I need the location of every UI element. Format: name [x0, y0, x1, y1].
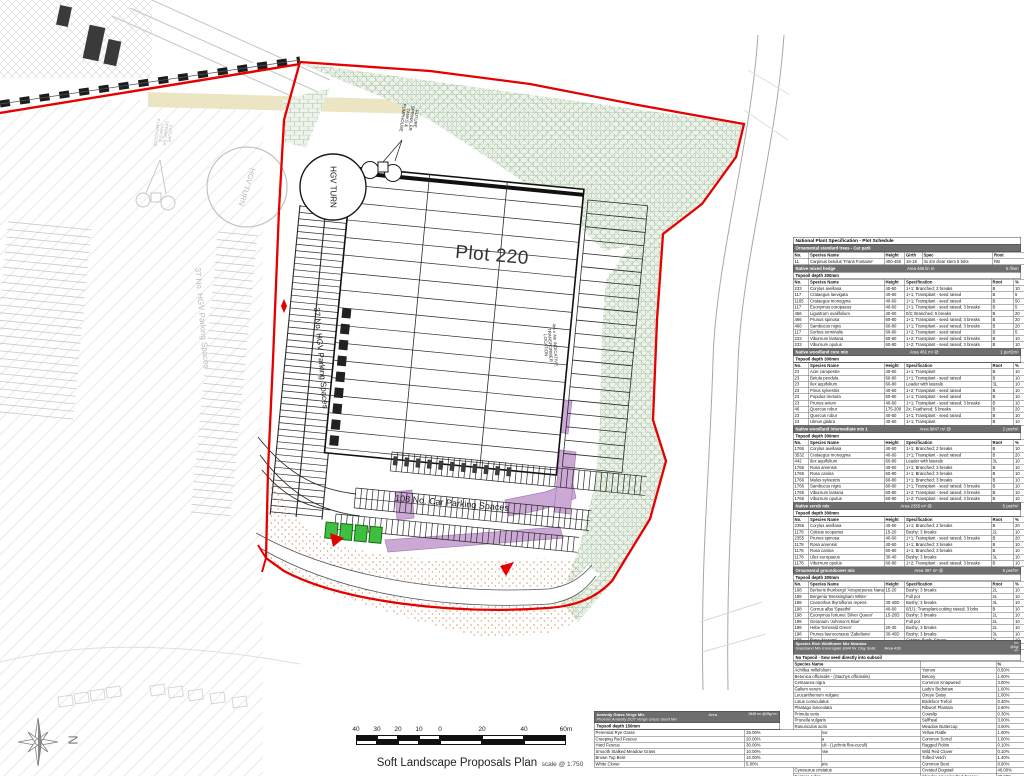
- table-cell: 1178: [793, 560, 809, 566]
- table-cell: 10: [1014, 496, 1024, 502]
- table-cell: 10: [1014, 419, 1024, 425]
- table-cell: 1+2; Transplant - seed raised; 3 breaks: [905, 496, 992, 502]
- table-cell: 60-80: [884, 560, 905, 566]
- table-cell: 1766: [793, 496, 809, 502]
- wildflower-rows-table: Species Name%Achillea millefoliumYarrow0…: [793, 661, 1024, 776]
- wildflower-titles: Species Rich Wildflower Mix MeadowGrassl…: [796, 642, 901, 653]
- transformer-label: 4m x 4m INDICATIVE TRANSFORMER LOCATION: [542, 321, 558, 369]
- scale-bar-segment: [398, 740, 419, 745]
- table-cell: Viburnum opulus: [809, 496, 885, 502]
- table-cell: Viburnum opulus: [809, 560, 885, 566]
- schedule-section-table: No.Species NameHeightSpecificationRoot%2…: [793, 279, 1024, 348]
- north-letter: N: [66, 735, 81, 744]
- table-cell: 1+2; Transplant - seed raised; 3 breaks: [905, 490, 992, 496]
- amenity-title-bar: Amenity Grass Verge MixPhoenix Amenity D…: [594, 711, 780, 723]
- plant-schedule-table: National Plant Specification - Plot Sche…: [793, 237, 1021, 650]
- section-name: Ornamental standard trees - Car park: [796, 246, 871, 251]
- drawing-scale-note: scale @ 1:750: [542, 761, 584, 768]
- table-cell: RB: [993, 259, 1024, 265]
- amenity-grass-mix-table: Amenity Grass Verge MixPhoenix Amenity D…: [594, 711, 780, 768]
- table-cell: 5.00%: [745, 761, 822, 767]
- table-row: 233Viburnum opulus60-801+2; Transplant -…: [793, 342, 1024, 348]
- table-cell: 1+2; Transplant - seed raised; 3 breaks: [905, 336, 992, 342]
- table-cell: Carpinus betulus 'Frans Fontaine': [809, 259, 885, 265]
- table-cell: 1+2; Transplant - seed raised; 3 breaks: [905, 560, 992, 566]
- drawing-title-block: Soft Landscape Proposals Plan scale @ 1:…: [340, 753, 620, 771]
- table-cell: B: [991, 560, 1014, 566]
- subtitle-plain: Grassland Mix: [796, 646, 823, 651]
- wildflower-units: m²@4g/m²: [1010, 642, 1018, 653]
- table-cell: 400-450: [884, 259, 905, 265]
- table-cell: 0/1/1; Transplant-cutting raised; 3 brks: [905, 606, 992, 612]
- wildflower-subtitle: Grassland Mix Emorsgate EM4 for Clay Soi…: [796, 646, 901, 651]
- table-cell: 40-60: [884, 419, 905, 425]
- amenity-rows-table: Perennial Rye Grass25.00%Creeping Red Fe…: [594, 730, 822, 768]
- schedule-section-bar: Native woodland intermediate mix 1Area 8…: [793, 425, 1021, 433]
- table-cell: 10: [1014, 342, 1024, 348]
- table-cell: 11: [793, 259, 809, 265]
- table-row: 1766Viburnum opulus60-801+2; Transplant …: [793, 496, 1024, 502]
- table-cell: 60-80: [884, 496, 905, 502]
- table-cell: B: [991, 342, 1014, 348]
- table-cell: B: [991, 419, 1014, 425]
- schedule-section-table: No.Species NameHeightSpecificationRoot%1…: [793, 439, 1024, 502]
- subtitle-italic: Emorsgate EM4 for Clay Soils: [822, 646, 875, 651]
- scale-bar: 403020100204060m: [356, 726, 570, 752]
- section-area: Area 461 m² @: [910, 349, 939, 354]
- scale-tick-label: 20: [478, 726, 485, 733]
- table-row: 1178Viburnum opulus60-801+2; Transplant …: [793, 560, 1024, 566]
- schedule-section-table: No.Species NameHeightSpecificationRoot%2…: [793, 362, 1024, 425]
- scale-bar-segment: [482, 740, 524, 745]
- section-area: Area 2355 m² @: [900, 503, 931, 508]
- table-cell: 1+1; Transplant - seed raised; 3 breaks: [905, 304, 992, 310]
- table-row: White Clover5.00%: [594, 761, 822, 767]
- scale-tick-label: 60m: [560, 726, 573, 733]
- amenity-area-label: Area: [708, 713, 716, 722]
- scale-tick-label: 10: [415, 726, 422, 733]
- section-rate: 5 per/m²: [1003, 503, 1019, 508]
- table-cell: Berberis thunbergii 'Atropurpurea Nana': [809, 587, 885, 593]
- amenity-subtitle: Phoenix Amenity DOT Verge Grass Seed Mix: [597, 717, 678, 722]
- section-rate: 2 per/m²: [1003, 426, 1019, 431]
- table-cell: Ulmus glabra: [809, 419, 885, 425]
- section-area: Area 466 lin m: [907, 266, 934, 271]
- table-cell: Viburnum opulus: [809, 342, 885, 348]
- hgv-turn-label: HGV TURN: [329, 166, 338, 208]
- section-rate: 5 per/m²: [1003, 568, 1019, 573]
- table-cell: 23: [793, 419, 809, 425]
- table-row: 11Carpinus betulus 'Frans Fontaine'400-4…: [793, 259, 1024, 265]
- table-cell: 60-80: [884, 342, 905, 348]
- landscape-plan-sheet: Plot 220 HGV TURN HGV TURN 37 No. HGV Pa…: [0, 0, 1024, 776]
- wildflower-title-bar: Species Rich Wildflower Mix MeadowGrassl…: [793, 640, 1021, 654]
- drawing-title: Soft Landscape Proposals Plan: [377, 757, 537, 769]
- section-area: Area 8847 m² @: [920, 426, 951, 431]
- table-cell: 1+1; Transplant - seed raised; 3 breaks: [905, 483, 992, 489]
- schedule-section-table: No.Species NameHeightSpecificationRoot%2…: [793, 516, 1024, 567]
- scale-tick-label: 20: [394, 726, 401, 733]
- section-area: Area 397 m² @: [914, 568, 943, 573]
- schedule-section-bar: Ornamental standard trees - Car park: [793, 245, 1021, 253]
- wildflower-mix-table: Species Rich Wildflower Mix MeadowGrassl…: [793, 640, 1021, 776]
- schedule-section-bar: Native woodland core mixArea 461 m² @1 p…: [793, 348, 1021, 356]
- scale-bar-segment: [377, 740, 398, 745]
- schedule-section-bar: Ornamental groundcover mixArea 397 m² @5…: [793, 567, 1021, 575]
- table-cell: 1+1; Transplant - seed raised; 3 breaks: [905, 317, 992, 323]
- section-rate: 5 /linm: [1006, 266, 1019, 271]
- scale-bar-segment: [524, 740, 566, 745]
- scale-tick-label: 40: [520, 726, 527, 733]
- schedule-section-bar: Native scrub mixArea 2355 m² @5 per/m²: [793, 502, 1021, 510]
- sprinkler-label-adjacent: FUTURE SPRINKLER TANKS & PUMPHOUSE: [153, 118, 174, 147]
- adjacent-plot-west: [0, 0, 330, 776]
- unit-line: m²: [1010, 649, 1018, 653]
- table-cell: White Clover: [594, 761, 745, 767]
- scale-tick-label: 40: [352, 726, 359, 733]
- scale-tick-label: 30: [373, 726, 380, 733]
- schedule-section-table: No.Species NameHeightGirthSpecRoot11Carp…: [793, 252, 1024, 265]
- amenity-area-value: 1848 m² @35g/ m²: [748, 713, 777, 722]
- schedule-section-bar: Native mixed hedgeArea 466 lin m5 /linm: [793, 265, 1021, 273]
- section-name: Native woodland intermediate mix 1: [796, 426, 868, 431]
- section-rate: 1 per/2m²: [1000, 349, 1018, 354]
- table-cell: 1+1; Transplant - seed raised; 3 breaks: [905, 400, 992, 406]
- scale-bar-segment: [356, 740, 377, 745]
- table-cell: 16-18: [905, 259, 923, 265]
- subtitle-area: Area 433: [885, 646, 901, 651]
- scale-bar-segment: [440, 740, 482, 745]
- table-cell: 1+1; Transplant - seed raised; 3 breaks: [905, 535, 992, 541]
- sprinkler-label: FUTURE SPRINKLER TANKS & PUMPHOUSE: [399, 103, 420, 132]
- section-name: Native mixed hedge: [796, 266, 836, 271]
- table-cell: 233: [793, 342, 809, 348]
- table-cell: 1+1; Transplant - seed raised; 3 breaks: [905, 323, 992, 329]
- section-name: Native woodland core mix: [796, 349, 848, 354]
- table-cell: B: [991, 496, 1014, 502]
- table-cell: 1+2; Transplant - seed raised; 3 breaks: [905, 342, 992, 348]
- amenity-titles: Amenity Grass Verge MixPhoenix Amenity D…: [597, 713, 678, 722]
- table-cell: 1+1; Transplant: [905, 419, 992, 425]
- table-cell: 10: [1014, 560, 1024, 566]
- section-name: Native scrub mix: [796, 503, 830, 508]
- schedule-title: National Plant Specification - Plot Sche…: [793, 237, 1021, 245]
- scale-bar-segment: [419, 740, 440, 745]
- table-cell: 3x 2m clear stem 5 brks: [922, 259, 993, 265]
- section-name: Ornamental groundcover mix: [796, 568, 855, 573]
- scale-tick-label: 0: [438, 726, 442, 733]
- table-row: 23Ulmus glabra40-601+1; TransplantB10: [793, 419, 1024, 425]
